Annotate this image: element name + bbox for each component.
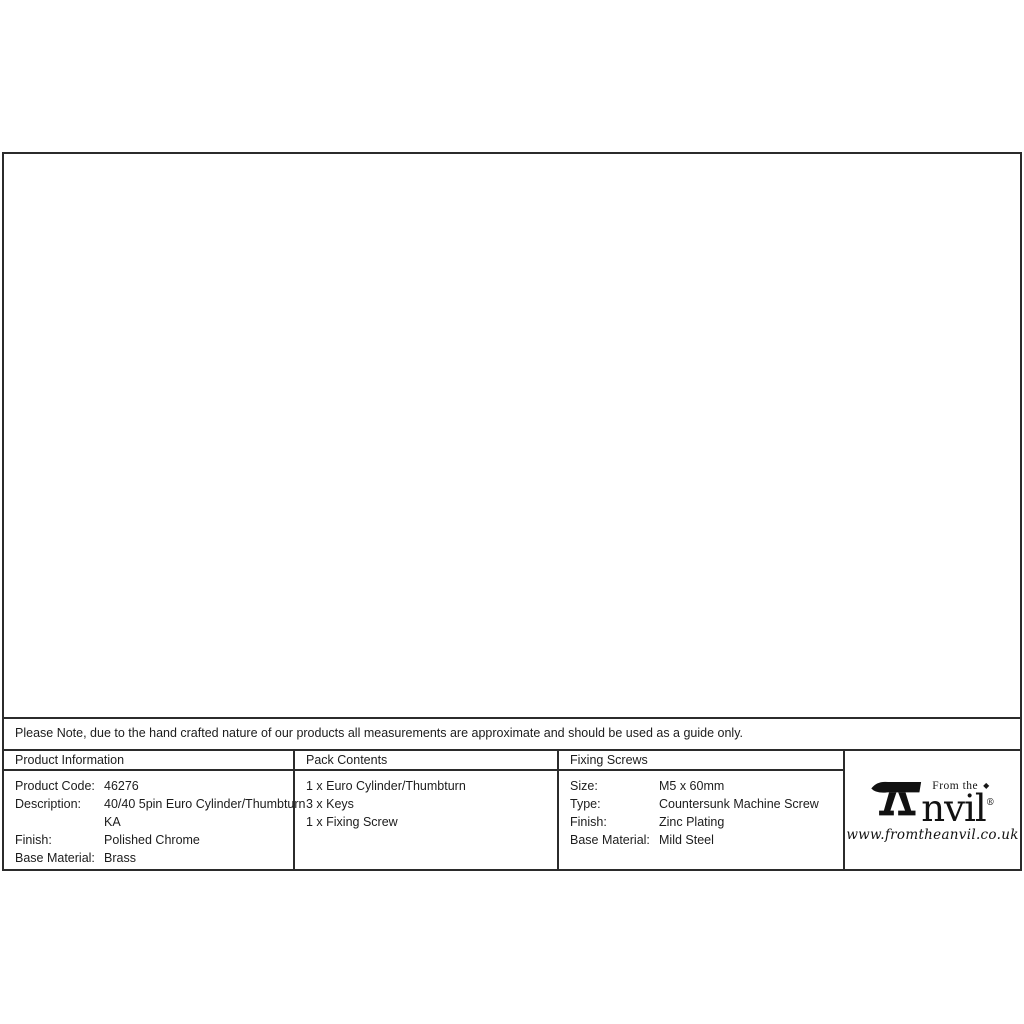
anvil-icon [870,777,922,823]
row-value: M5 x 60mm [659,777,724,795]
row-label: Description: [15,795,104,813]
fixing-screws-body: Size:M5 x 60mm Type:Countersunk Machine … [559,771,843,849]
table-row: Base Material:Mild Steel [570,831,839,849]
disclaimer-row: Please Note, due to the hand crafted nat… [4,717,1020,749]
logo-website: www.fromtheanvil.co.uk [846,827,1018,843]
row-label: Type: [570,795,659,813]
row-label: Size: [570,777,659,795]
row-label: Base Material: [570,831,659,849]
fixing-screws-header: Fixing Screws [559,751,843,771]
table-row: Finish:Polished Chrome [15,831,289,849]
table-row: Type:Countersunk Machine Screw [570,795,839,813]
sheet-frame: Please Note, due to the hand crafted nat… [2,152,1022,871]
logo-wordmark: From the◆ nvil® [924,777,994,824]
row-value: Mild Steel [659,831,714,849]
row-value: 46276 [104,777,139,795]
row-value: 40/40 5pin Euro Cylinder/Thumbturn [104,795,306,813]
disclaimer-text: Please Note, due to the hand crafted nat… [4,719,1020,748]
list-item: 1 x Euro Cylinder/Thumbturn [306,777,553,795]
product-information-column: Product Information Product Code:46276 D… [4,751,295,869]
row-value: KA [104,813,121,831]
logo-name-text: nvil [921,787,985,830]
spec-table: Product Information Product Code:46276 D… [4,749,1020,869]
product-information-header: Product Information [4,751,293,771]
table-row: Description:40/40 5pin Euro Cylinder/Thu… [15,795,289,813]
table-row: KA [15,813,289,831]
pack-contents-body: 1 x Euro Cylinder/Thumbturn 3 x Keys 1 x… [295,771,557,831]
product-datasheet: { "note": { "text": "Please Note, due to… [0,0,1024,1024]
list-item: 1 x Fixing Screw [306,813,553,831]
table-row: Finish:Zinc Plating [570,813,839,831]
table-row: Base Material:Brass [15,849,289,867]
fixing-screws-column: Fixing Screws Size:M5 x 60mm Type:Counte… [559,751,845,869]
brand-logo-cell: From the◆ nvil® www.fromtheanvil.co.uk [845,751,1020,869]
table-row: Product Code:46276 [15,777,289,795]
table-row: Size:M5 x 60mm [570,777,839,795]
pack-contents-column: Pack Contents 1 x Euro Cylinder/Thumbtur… [295,751,559,869]
product-information-body: Product Code:46276 Description:40/40 5pi… [4,771,293,867]
pack-contents-header: Pack Contents [295,751,557,771]
row-label: Finish: [15,831,104,849]
list-item: 3 x Keys [306,795,553,813]
registered-mark: ® [986,798,995,808]
row-value: Brass [104,849,136,867]
logo-name: nvil® [921,788,994,824]
row-label: Product Code: [15,777,104,795]
brand-logo: From the◆ nvil® [870,777,994,824]
row-value: Zinc Plating [659,813,724,831]
row-value: Polished Chrome [104,831,200,849]
row-label: Base Material: [15,849,104,867]
row-value: Countersunk Machine Screw [659,795,819,813]
row-label: Finish: [570,813,659,831]
